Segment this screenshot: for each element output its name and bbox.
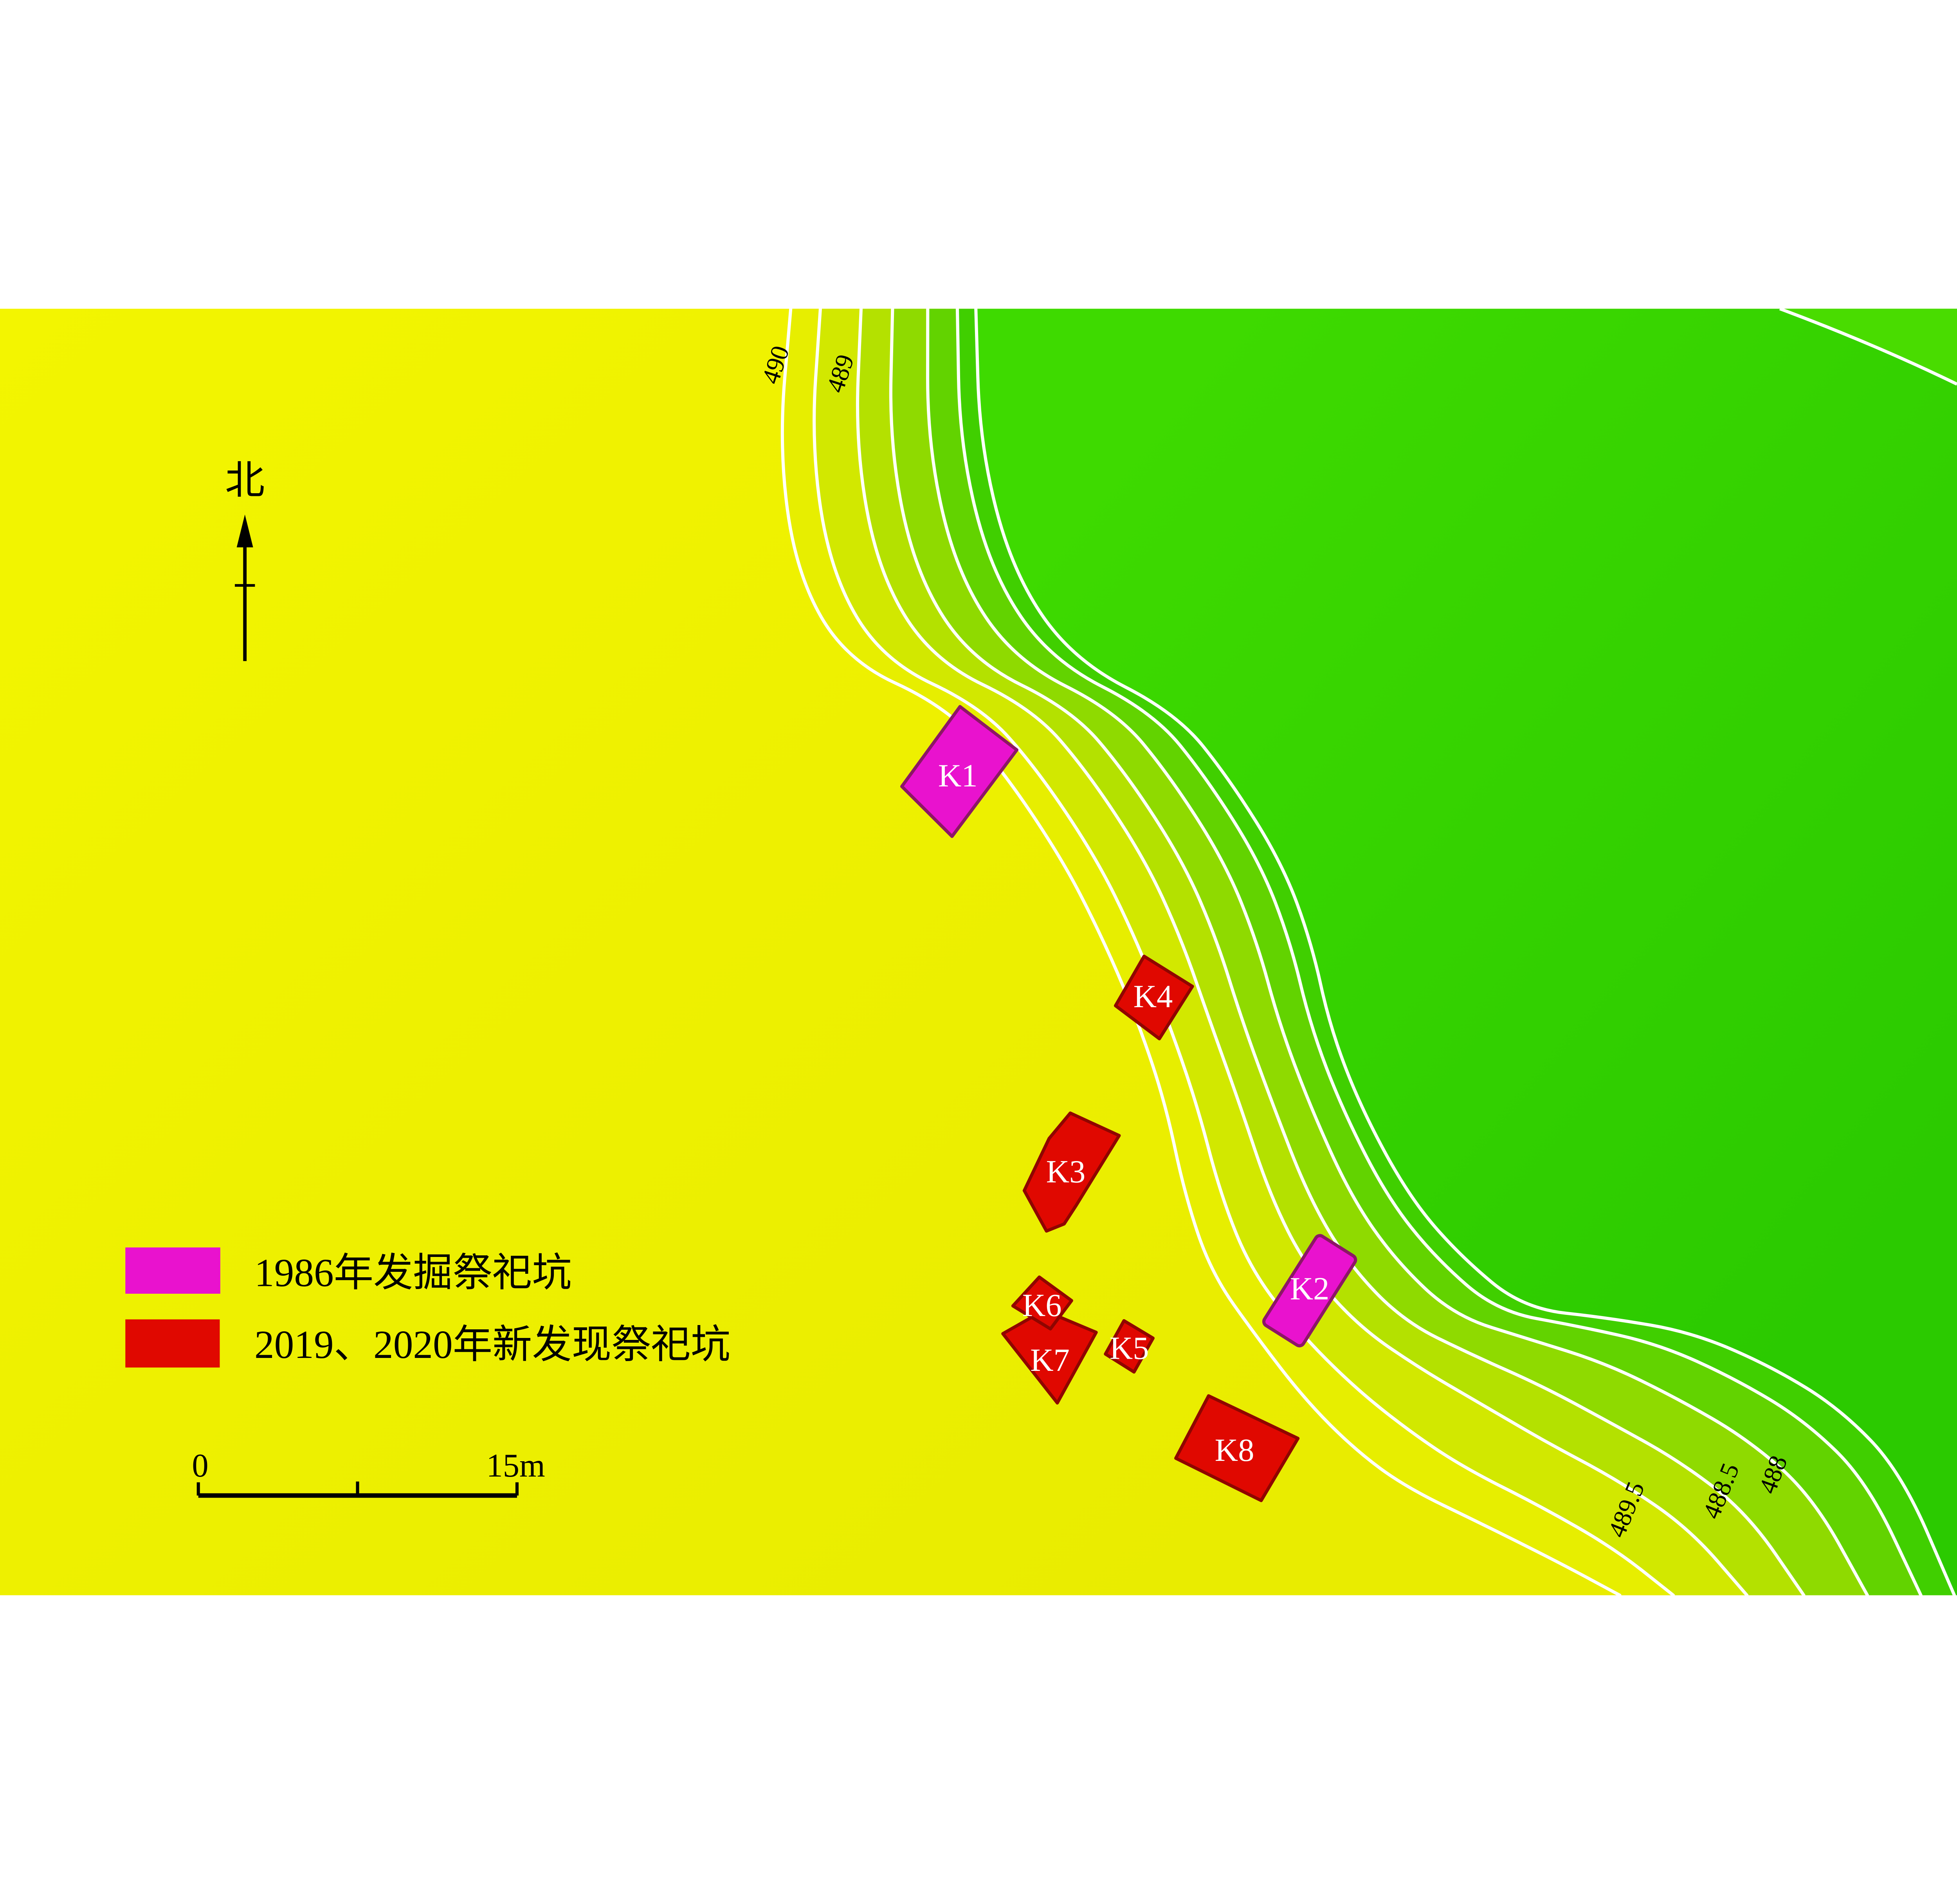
- pit-label-K6: K6: [1022, 1287, 1062, 1323]
- pit-label-K7: K7: [1030, 1342, 1070, 1378]
- pit-label-K3: K3: [1046, 1154, 1086, 1189]
- legend-swatch-new: [125, 1320, 220, 1368]
- scale-bar-start-label: 0: [192, 1448, 208, 1484]
- legend-label-new: 2019、2020年新发现祭祀坑: [254, 1323, 730, 1367]
- pit-label-K4: K4: [1133, 979, 1173, 1014]
- site-plan-map: K1 K2 K3 K4 K5 K6 K7 K8 490 489 489.5 48…: [0, 0, 1957, 1904]
- pit-label-K2: K2: [1290, 1271, 1330, 1307]
- north-label: 北: [225, 459, 265, 503]
- pit-label-K5: K5: [1110, 1331, 1149, 1366]
- pit-label-K1: K1: [938, 758, 978, 793]
- scale-bar-end-label: 15m: [487, 1448, 545, 1484]
- legend-label-1986: 1986年发掘祭祀坑: [254, 1251, 572, 1295]
- pit-label-K8: K8: [1215, 1432, 1254, 1468]
- legend-swatch-1986: [125, 1248, 220, 1294]
